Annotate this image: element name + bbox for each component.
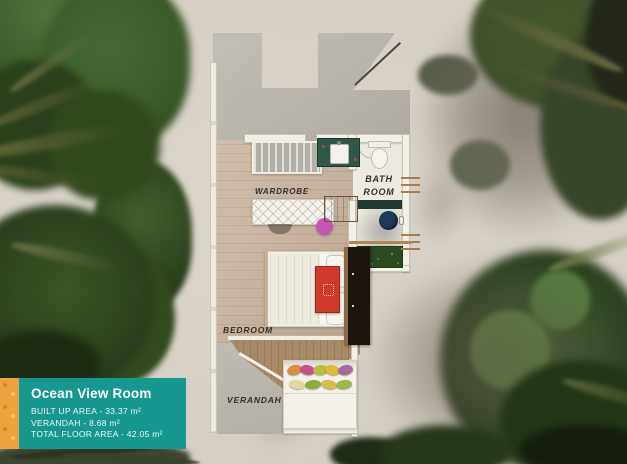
wardrobe-label: WARDROBE	[250, 187, 314, 196]
planter-wood-ledge	[349, 241, 412, 244]
towel-ladder-icon	[401, 177, 420, 198]
daybed-seat-line	[284, 393, 356, 394]
bed-duvet	[270, 254, 320, 324]
headboard-detail	[352, 273, 354, 275]
writing-desk	[324, 196, 358, 222]
runner-motif	[323, 284, 334, 296]
bed-runner	[315, 266, 340, 313]
vanity-accessory	[354, 158, 357, 161]
built-up-area-line: BUILT UP AREA - 33.37 m²	[31, 406, 180, 418]
vanity-counter	[317, 138, 360, 167]
total-floor-area-line: TOTAL FLOOR AREA - 42.05 m²	[31, 429, 180, 441]
daybed-cushion	[288, 379, 305, 390]
verandah-label: VERANDAH	[227, 395, 279, 405]
info-card-title: Ocean View Room	[31, 386, 180, 401]
wardrobe-closet	[252, 141, 322, 174]
shower-control	[399, 216, 404, 225]
shower-basin	[379, 211, 398, 230]
info-card: Ocean View Room BUILT UP AREA - 33.37 m²…	[0, 378, 186, 449]
daybed-cushion	[335, 379, 352, 390]
info-card-lines: BUILT UP AREA - 33.37 m² VERANDAH - 8.68…	[31, 406, 180, 441]
wall-bathroom-right	[402, 134, 410, 272]
bathroom-label: BATH ROOM	[358, 173, 400, 199]
verandah-area-line: VERANDAH - 8.68 m²	[31, 418, 180, 430]
sink	[330, 144, 349, 164]
bathroom-label-line2: ROOM	[358, 186, 400, 199]
daybed-cushion	[305, 379, 322, 390]
verandah-top-trim	[228, 336, 354, 340]
bed	[265, 251, 347, 327]
headboard-detail	[352, 305, 354, 307]
bath-partition-strip	[357, 200, 403, 209]
headboard-panel	[344, 247, 370, 345]
faucet-icon	[337, 141, 341, 145]
vanity-accessory	[322, 145, 325, 148]
floor-plan-scene: WARDROBE BATH ROOM BEDROOM VERANDAH Ocea…	[0, 0, 627, 464]
toilet-tank	[368, 141, 391, 148]
verandah-daybed	[283, 360, 357, 429]
info-card-accent-strip	[0, 378, 19, 449]
info-card-body: Ocean View Room BUILT UP AREA - 33.37 m²…	[19, 378, 186, 449]
bedroom-label: BEDROOM	[223, 325, 273, 335]
daybed-pillow	[337, 364, 354, 377]
bathroom-label-line1: BATH	[358, 173, 400, 186]
boundary-fence-left	[210, 62, 217, 433]
